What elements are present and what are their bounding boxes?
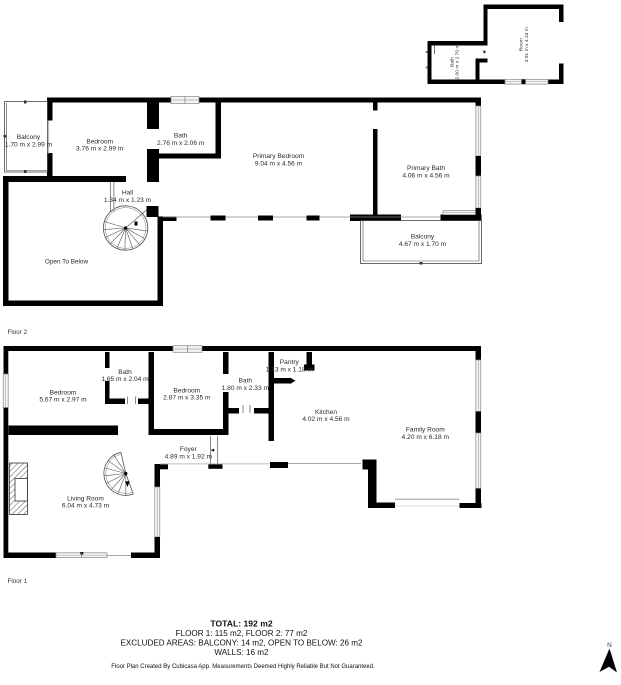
svg-text:Foyer: Foyer [180,446,198,453]
svg-text:Balcony: Balcony [17,134,41,141]
svg-text:1.65 m x 2.04 m: 1.65 m x 2.04 m [101,376,149,383]
svg-text:Family Room: Family Room [406,427,445,434]
svg-text:4.06 m x 4.56 m: 4.06 m x 4.56 m [402,172,450,179]
svg-text:Living Room: Living Room [67,495,104,502]
svg-text:Primary Bedroom: Primary Bedroom [253,153,305,160]
svg-text:Open To Below: Open To Below [45,259,89,266]
svg-text:2.76 m x 2.06 m: 2.76 m x 2.06 m [157,140,205,147]
svg-text:Room: Room [518,38,524,51]
svg-text:4.89 m x 1.92 m: 4.89 m x 1.92 m [165,454,213,461]
svg-text:5.67 m x 2.97 m: 5.67 m x 2.97 m [39,397,87,404]
svg-text:EXCLUDED AREAS: BALCONY: 14 m2: EXCLUDED AREAS: BALCONY: 14 m2, OPEN TO … [120,639,362,648]
svg-text:4.67 m x 1.70 m: 4.67 m x 1.70 m [399,241,447,248]
svg-text:1.34 m x 1.23 m: 1.34 m x 1.23 m [104,197,152,204]
svg-text:Bath: Bath [239,378,253,385]
svg-text:Bedroom: Bedroom [86,138,113,145]
svg-text:Floor Plan Created By Cubicasa: Floor Plan Created By Cubicasa App. Meas… [111,664,375,670]
svg-text:Floor 1: Floor 1 [8,578,28,585]
svg-text:Bath: Bath [174,133,188,140]
svg-text:2.00 m x 2.70 m: 2.00 m x 2.70 m [454,44,460,79]
svg-text:Balcony: Balcony [411,234,435,241]
svg-text:1.13 m x 1.18 m: 1.13 m x 1.18 m [266,366,314,373]
svg-text:Floor 2: Floor 2 [8,329,28,336]
svg-text:Bedroom: Bedroom [173,387,200,394]
svg-text:6.04 m x 4.73 m: 6.04 m x 4.73 m [62,503,110,510]
svg-text:Hall: Hall [122,190,134,197]
svg-text:Kitchen: Kitchen [315,409,337,416]
svg-text:Primary Bath: Primary Bath [407,165,445,172]
svg-text:9.04 m x 4.56 m: 9.04 m x 4.56 m [255,160,303,167]
svg-text:1.80 m x 2.33 m: 1.80 m x 2.33 m [222,385,270,392]
svg-text:Bath: Bath [118,369,132,376]
svg-text:TOTAL: 192 m2: TOTAL: 192 m2 [210,619,272,629]
svg-text:3.76 m x 2.99 m: 3.76 m x 2.99 m [76,146,124,153]
svg-text:4.20 m x 6.18 m: 4.20 m x 6.18 m [402,434,450,441]
svg-text:2.87 m x 3.35 m: 2.87 m x 3.35 m [163,395,211,402]
svg-text:3.91 m x 4.43 m: 3.91 m x 4.43 m [524,27,530,62]
svg-text:N: N [607,642,612,649]
svg-text:Bedroom: Bedroom [50,389,77,396]
svg-text:4.02 m x 4.56 m: 4.02 m x 4.56 m [302,416,350,423]
svg-text:WALLS: 16 m2: WALLS: 16 m2 [214,648,269,657]
svg-text:Pantry: Pantry [280,359,300,366]
svg-text:FLOOR 1: 115 m2, FLOOR 2: 77 m: FLOOR 1: 115 m2, FLOOR 2: 77 m2 [176,629,308,638]
svg-text:1.70 m x 2.99 m: 1.70 m x 2.99 m [5,141,53,148]
